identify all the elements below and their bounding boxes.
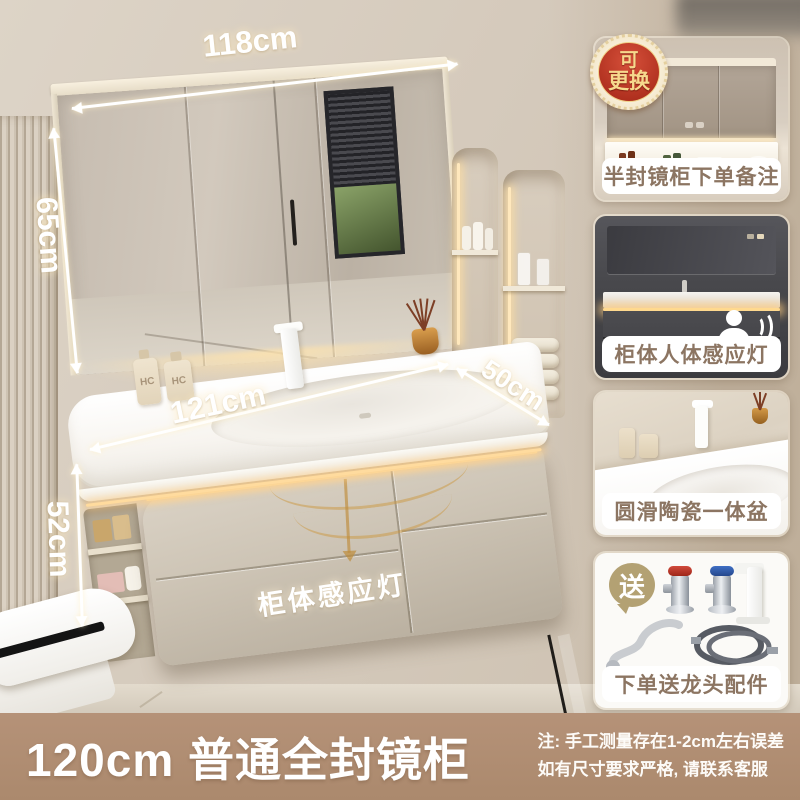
mirror-display-icons xyxy=(685,122,693,128)
candle-jar xyxy=(124,565,142,591)
angle-valve-hot xyxy=(671,575,689,609)
niche-shelf xyxy=(452,250,498,255)
cabinet-height-label: 52cm xyxy=(40,498,77,579)
mirror-height-label: 65cm xyxy=(28,196,67,274)
reed-diffuser xyxy=(752,408,768,424)
mirror-surface xyxy=(57,69,462,375)
bottle-label: HC xyxy=(171,374,187,387)
person-head xyxy=(726,310,742,326)
bottle-label: HC xyxy=(139,375,155,388)
glass-bottle xyxy=(536,258,550,286)
toiletry-bottle xyxy=(462,226,471,250)
gift-badge: 送 xyxy=(609,563,655,607)
blue-valve-handle xyxy=(710,566,734,576)
kraft-box xyxy=(112,514,132,540)
toiletry-bottle xyxy=(473,222,483,250)
red-valve-handle xyxy=(668,566,692,576)
toiletry-bottle xyxy=(485,228,493,250)
bottle-pump xyxy=(170,351,182,361)
kraft-box xyxy=(92,519,113,543)
panel-caption: 下单送龙头配件 xyxy=(602,666,781,702)
feature-panel-ceramic-basin: 圆滑陶瓷一体盆 xyxy=(593,390,790,537)
shelf-board xyxy=(88,543,142,556)
note-line-1: 注: 手工测量存在1-2cm左右误差 xyxy=(537,728,784,756)
ceiling-shadow xyxy=(676,0,800,36)
window-blinds xyxy=(328,91,396,188)
braided-hoses-icon xyxy=(683,617,783,673)
panel-caption: 柜体人体感应灯 xyxy=(602,336,781,372)
badge-face: 可 更换 xyxy=(598,42,660,102)
drain-pipe-icon xyxy=(601,615,689,673)
valve-flange xyxy=(666,605,694,614)
replaceable-seal-badge: 可 更换 xyxy=(590,34,668,110)
mini-faucet xyxy=(695,406,708,448)
mini-dark-mirror xyxy=(607,226,776,274)
bottom-banner: 120cm 普通全封镜柜 注: 手工测量存在1-2cm左右误差 如有尺寸要求严格… xyxy=(0,713,800,800)
mini-counter xyxy=(603,292,780,308)
mini-mirror-seam xyxy=(719,66,721,138)
product-title: 120cm 普通全封镜柜 xyxy=(26,724,470,790)
cabinet-sensor-light-label: 柜体感应灯 xyxy=(255,562,409,623)
feature-panel-accessories: 送 下单送龙 xyxy=(593,551,790,710)
panel-caption: 圆滑陶瓷一体盆 xyxy=(602,493,781,529)
product-image: 柜体感应灯 HC HC xyxy=(0,0,800,800)
basin-drain xyxy=(359,413,372,419)
glass-bottle xyxy=(517,252,531,286)
valve-outlet xyxy=(705,584,714,593)
note-line-2: 如有尺寸要求严格, 请联系客服 xyxy=(537,756,784,784)
mirror-display-icons xyxy=(757,234,764,239)
window-greenery xyxy=(335,183,401,254)
gift-faucet xyxy=(747,567,762,619)
mirror-width-label: 118cm xyxy=(179,17,322,67)
panel-caption: 半封镜柜下单备注 xyxy=(602,158,781,194)
badge-text-line2: 更换 xyxy=(608,71,650,93)
valve-outlet xyxy=(663,584,672,593)
feature-panel-sensor-light: 柜体人体感应灯 xyxy=(593,214,790,380)
wall-niche-left xyxy=(452,148,498,360)
lotion-bottle xyxy=(619,428,635,458)
badge-text-line1: 可 xyxy=(619,51,638,71)
niche-shelf xyxy=(503,286,565,291)
lotion-bottle xyxy=(639,434,658,458)
mirror-reflection-door-handle xyxy=(290,200,297,246)
angle-valve-cold xyxy=(713,575,731,609)
valve-flange xyxy=(708,605,736,614)
mirror-reflection-window xyxy=(324,86,405,258)
bottle-pump xyxy=(139,349,150,359)
measurement-note: 注: 手工测量存在1-2cm左右误差 如有尺寸要求严格, 请联系客服 xyxy=(537,728,784,784)
